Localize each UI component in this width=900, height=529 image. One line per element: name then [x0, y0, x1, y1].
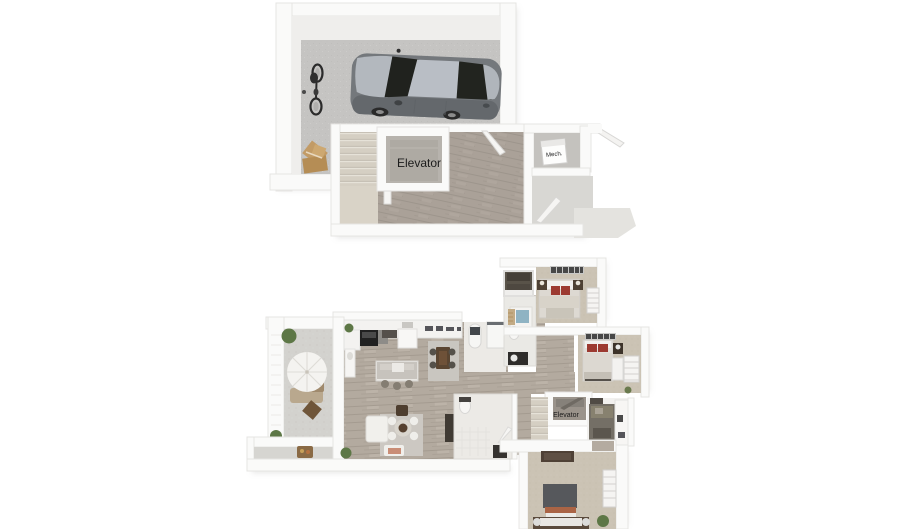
svg-text:Elevator: Elevator [397, 156, 441, 170]
svg-text:Elevator: Elevator [553, 412, 579, 419]
